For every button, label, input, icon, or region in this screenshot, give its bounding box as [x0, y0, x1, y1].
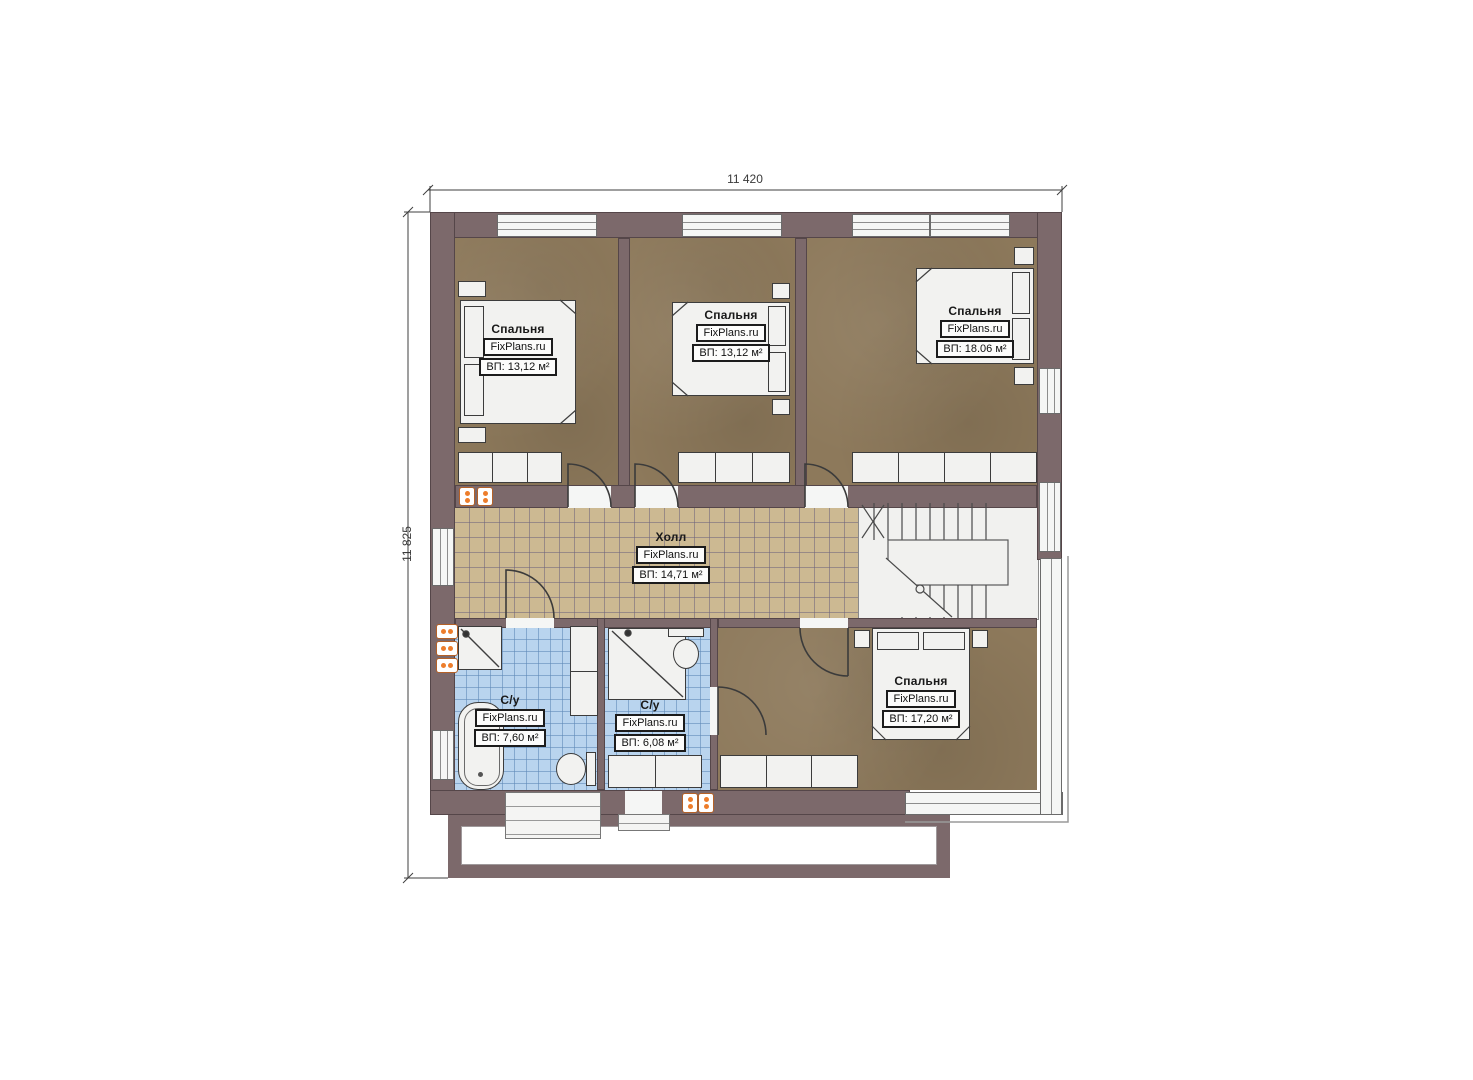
wardrobe-bedroom-4: [720, 755, 858, 788]
porch-step-small: [618, 814, 670, 831]
nightstand: [1014, 247, 1034, 265]
area-box: ВП: 18.06 м²: [936, 340, 1013, 358]
door-gap-bedroom-1: [568, 486, 611, 508]
nightstand: [854, 630, 870, 648]
dimension-line-top: [423, 185, 1067, 212]
nightstand: [772, 399, 790, 415]
porch-door-gap: [625, 791, 662, 814]
room-name: Холл: [656, 530, 687, 544]
radiator-symbol: [436, 641, 458, 656]
dimension-left-value: 11 825: [400, 509, 414, 579]
room-name: Спальня: [948, 304, 1001, 318]
nightstand: [458, 427, 486, 443]
toilet-bowl: [673, 639, 699, 669]
brand-box: FixPlans.ru: [475, 709, 544, 727]
room-label-hall: Холл FixPlans.ru ВП: 14,71 м²: [615, 530, 727, 584]
room-name: С/у: [640, 698, 659, 712]
brand-box: FixPlans.ru: [940, 320, 1009, 338]
radiator-symbol: [459, 487, 475, 506]
nightstand: [772, 283, 790, 299]
wall-stairs-bed4: [718, 618, 1037, 628]
room-label-bathroom-2: С/у FixPlans.ru ВП: 6,08 м²: [594, 698, 706, 752]
area-box: ВП: 13,12 м²: [479, 358, 556, 376]
radiator-symbol: [436, 658, 458, 673]
wall-bed2-bed3: [795, 238, 807, 508]
window-bathroom-1-left: [432, 730, 454, 780]
radiator-symbol: [477, 487, 493, 506]
nightstand: [458, 281, 486, 297]
wall-left: [430, 212, 455, 815]
brand-box: FixPlans.ru: [483, 338, 552, 356]
dimension-top-value: 11 420: [428, 172, 1062, 186]
area-box: ВП: 6,08 м²: [614, 734, 685, 752]
radiator-symbol: [682, 793, 698, 813]
room-name: Спальня: [704, 308, 757, 322]
door-gap-bedroom-4: [800, 618, 848, 628]
room-label-bedroom-4: Спальня FixPlans.ru ВП: 17,20 м²: [865, 674, 977, 728]
radiator-symbol: [436, 624, 458, 639]
window-bedroom-1: [497, 214, 597, 237]
pillow: [877, 632, 919, 650]
area-box: ВП: 14,71 м²: [632, 566, 709, 584]
area-box: ВП: 7,60 м²: [474, 729, 545, 747]
window-bedroom-3-divider: [929, 214, 931, 237]
room-name: С/у: [500, 693, 519, 707]
shower-cabin: [458, 626, 502, 670]
wall-bedrooms-hall: [455, 485, 1037, 508]
glass-wall-right: [1040, 558, 1062, 815]
toilet-tank: [668, 628, 704, 637]
porch-steps: [505, 792, 601, 839]
room-name: Спальня: [491, 322, 544, 336]
nightstand: [1014, 367, 1034, 385]
brand-box: FixPlans.ru: [636, 546, 705, 564]
room-label-bedroom-2: Спальня FixPlans.ru ВП: 13,12 м²: [675, 308, 787, 362]
window-hall-left: [432, 528, 454, 586]
door-gap-bedroom-3: [805, 486, 848, 508]
pillow: [923, 632, 965, 650]
room-label-bedroom-1: Спальня FixPlans.ru ВП: 13,12 м²: [462, 322, 574, 376]
window-bedroom-2: [682, 214, 782, 237]
stairwell: [858, 502, 1039, 620]
shower-cabin: [608, 628, 686, 700]
brand-box: FixPlans.ru: [696, 324, 765, 342]
room-label-bathroom-1: С/у FixPlans.ru ВП: 7,60 м²: [454, 693, 566, 747]
window-bedroom-3: [852, 214, 1010, 237]
door-gap-bedroom-2: [635, 486, 678, 508]
room-name: Спальня: [894, 674, 947, 688]
wardrobe-bedroom-2: [678, 452, 790, 483]
brand-box: FixPlans.ru: [615, 714, 684, 732]
area-box: ВП: 17,20 м²: [882, 710, 959, 728]
bathtub-drain: [478, 772, 483, 777]
nightstand: [972, 630, 988, 648]
window-bedroom-3-right: [1039, 368, 1061, 414]
radiator-symbol: [698, 793, 714, 813]
wall-bottom: [430, 790, 910, 815]
bathroom-2-cabinet: [608, 755, 702, 788]
brand-box: FixPlans.ru: [886, 690, 955, 708]
toilet-bowl: [556, 753, 586, 785]
door-gap-bathroom-2: [710, 687, 718, 735]
wardrobe-bedroom-1: [458, 452, 562, 483]
toilet-tank: [586, 752, 596, 786]
door-gap-bathroom-1: [506, 618, 554, 628]
window-stairs-right: [1039, 482, 1061, 552]
wall-bed1-bed2: [618, 238, 630, 508]
room-label-bedroom-3: Спальня FixPlans.ru ВП: 18.06 м²: [919, 304, 1031, 358]
floor-plan-canvas: 11 420 11 825 Спальня FixPlans.ru ВП: 13…: [0, 0, 1473, 1080]
wardrobe-bedroom-3: [852, 452, 1037, 483]
area-box: ВП: 13,12 м²: [692, 344, 769, 362]
